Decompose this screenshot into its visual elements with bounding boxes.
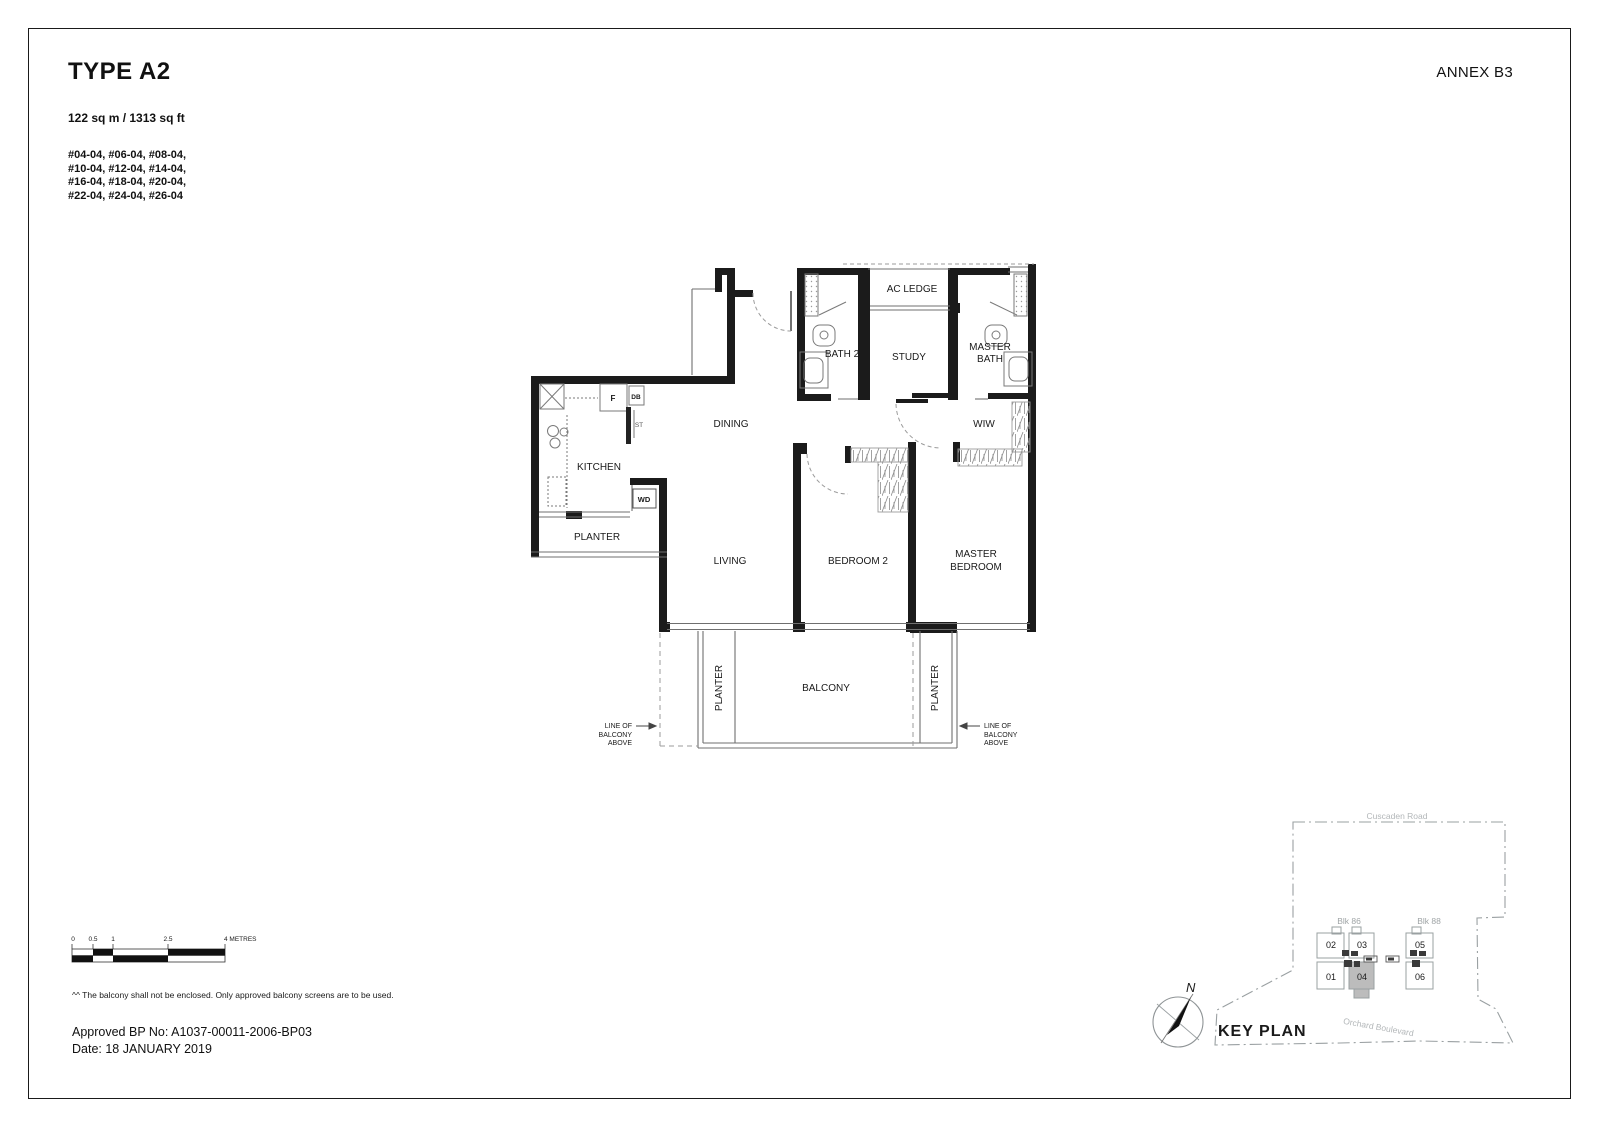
floorplan-sheet: TYPE A2 ANNEX B3 122 sq m / 1313 sq ft #… bbox=[0, 0, 1600, 1130]
road-label-cuscaden: Cuscaden Road bbox=[1367, 811, 1428, 821]
room-label-master-bath: MASTER bbox=[969, 342, 1011, 353]
hob-burner bbox=[550, 438, 560, 448]
floor-plan: AC LEDGE BATH 2 STUDY MASTER BATH DINING… bbox=[531, 264, 1036, 748]
room-label-ac-ledge: AC LEDGE bbox=[887, 284, 938, 295]
bedroom2-door-swing bbox=[807, 454, 848, 494]
room-label-planter: PLANTER bbox=[574, 532, 620, 543]
room-label-planter-left: PLANTER bbox=[714, 665, 725, 711]
note-line: LINE OF bbox=[605, 723, 632, 730]
wiw-wardrobe bbox=[958, 449, 1022, 466]
store-wall bbox=[626, 407, 631, 444]
balcony-footnote: ^^ The balcony shall not be enclosed. On… bbox=[72, 990, 394, 1000]
bedroom2-closet bbox=[878, 462, 908, 512]
balcony-above-note-right: LINE OF BALCONY ABOVE bbox=[984, 723, 1018, 747]
unit-05-label: 05 bbox=[1415, 940, 1425, 950]
scale-ticks bbox=[72, 944, 225, 949]
master-bath-sliding-door bbox=[988, 393, 1032, 399]
scale-tick-label: 0 bbox=[71, 936, 75, 943]
approval-date: Date: 18 JANUARY 2019 bbox=[72, 1042, 212, 1056]
unit-03-label: 03 bbox=[1357, 940, 1367, 950]
north-label: N bbox=[1186, 980, 1196, 995]
fixture-label-wd: WD bbox=[638, 495, 651, 504]
block-86-label: Blk 86 bbox=[1337, 916, 1361, 926]
key-plan: Blk 86 Blk 88 02 03 01 04 05 06 Cuscaden… bbox=[1153, 811, 1513, 1047]
keyplan-unit-numbers: 02 03 01 04 05 06 bbox=[1326, 940, 1425, 982]
room-label-study: STUDY bbox=[892, 352, 926, 363]
annotation-arrows bbox=[636, 723, 980, 729]
oven bbox=[548, 477, 566, 506]
balcony-above-note-left: LINE OF BALCONY ABOVE bbox=[599, 723, 633, 747]
fixture-label-fridge: F bbox=[611, 394, 616, 403]
unit-04-label: 04 bbox=[1357, 972, 1367, 982]
room-labels: AC LEDGE BATH 2 STUDY MASTER BATH DINING… bbox=[574, 284, 1011, 711]
road-label-orchard: Orchard Boulevard bbox=[1343, 1016, 1415, 1038]
unit-04-tab-highlighted bbox=[1354, 989, 1369, 998]
wardrobes bbox=[851, 402, 1030, 512]
room-label-bedroom2: BEDROOM 2 bbox=[828, 556, 888, 567]
unit-01-label: 01 bbox=[1326, 972, 1336, 982]
drawing-canvas: AC LEDGE BATH 2 STUDY MASTER BATH DINING… bbox=[0, 0, 1600, 1130]
entry-door-swing bbox=[753, 293, 791, 331]
scale-tick-label: 1 bbox=[111, 936, 115, 943]
walls bbox=[531, 264, 1036, 633]
master-door-swing bbox=[896, 404, 941, 448]
fixture-label-db: DB bbox=[631, 394, 641, 401]
note-line: LINE OF bbox=[984, 723, 1011, 730]
scale-bar: 0 0.5 1 2.5 4 METRES bbox=[71, 936, 257, 962]
bedroom2-closet bbox=[851, 448, 908, 462]
arrow-right-icon bbox=[649, 723, 656, 729]
room-label-bath2: BATH 2 bbox=[825, 349, 860, 360]
room-label-master-bedroom: MASTER bbox=[955, 549, 997, 560]
master-shower bbox=[1014, 274, 1027, 316]
note-line: BALCONY bbox=[984, 732, 1018, 739]
bath2-shower bbox=[805, 274, 818, 316]
room-label-living: LIVING bbox=[714, 556, 747, 567]
note-line: BALCONY bbox=[599, 732, 633, 739]
block-88-label: Blk 88 bbox=[1417, 916, 1441, 926]
arrow-left-icon bbox=[960, 723, 967, 729]
room-label-wiw: WIW bbox=[973, 419, 995, 430]
bath2-toilet bbox=[813, 325, 835, 346]
kitchen-fixtures bbox=[540, 384, 656, 508]
study-sliding-door bbox=[896, 399, 928, 403]
bath2-sliding-door bbox=[797, 394, 831, 401]
room-label-balcony: BALCONY bbox=[802, 683, 850, 694]
approved-bp-number: Approved BP No: A1037-00011-2006-BP03 bbox=[72, 1025, 312, 1039]
fixture-label-st: ST bbox=[635, 422, 643, 429]
note-line: ABOVE bbox=[608, 740, 632, 747]
keyplan-title: KEY PLAN bbox=[1218, 1023, 1307, 1040]
unit-06-label: 06 bbox=[1415, 972, 1425, 982]
scale-labels: 0 0.5 1 2.5 4 METRES bbox=[71, 936, 257, 943]
room-label-kitchen: KITCHEN bbox=[577, 462, 621, 473]
hob-burner bbox=[548, 426, 559, 437]
wiw-wardrobe bbox=[1012, 402, 1030, 452]
room-label-master-bath: BATH bbox=[977, 354, 1003, 365]
unit-02-label: 02 bbox=[1326, 940, 1336, 950]
compass-icon bbox=[1153, 994, 1203, 1047]
scale-end-label: 4 METRES bbox=[224, 936, 257, 943]
room-label-master-bedroom: BEDROOM bbox=[950, 562, 1002, 573]
room-label-planter-right: PLANTER bbox=[930, 665, 941, 711]
study-sliding-door bbox=[912, 393, 948, 398]
scale-tick-label: 0.5 bbox=[88, 936, 97, 943]
note-line: ABOVE bbox=[984, 740, 1008, 747]
scale-tick-label: 2.5 bbox=[163, 936, 172, 943]
room-label-dining: DINING bbox=[714, 419, 749, 430]
